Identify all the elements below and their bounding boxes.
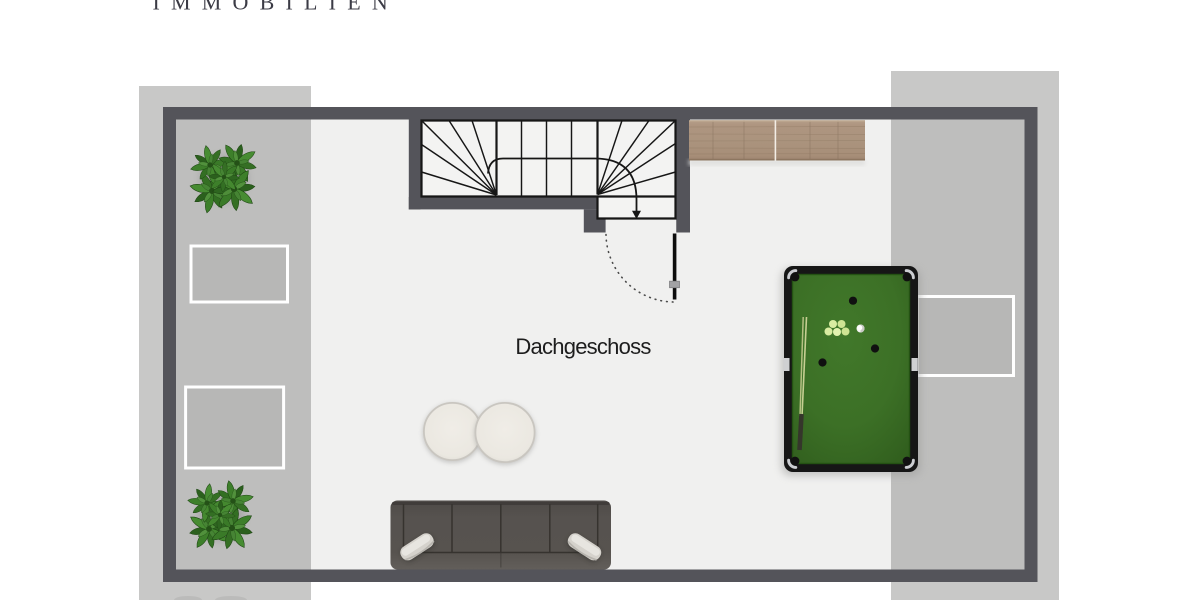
svg-text:IMMOBILIEN: IMMOBILIEN — [153, 0, 399, 15]
svg-text:Dachgeschoss: Dachgeschoss — [515, 334, 651, 359]
